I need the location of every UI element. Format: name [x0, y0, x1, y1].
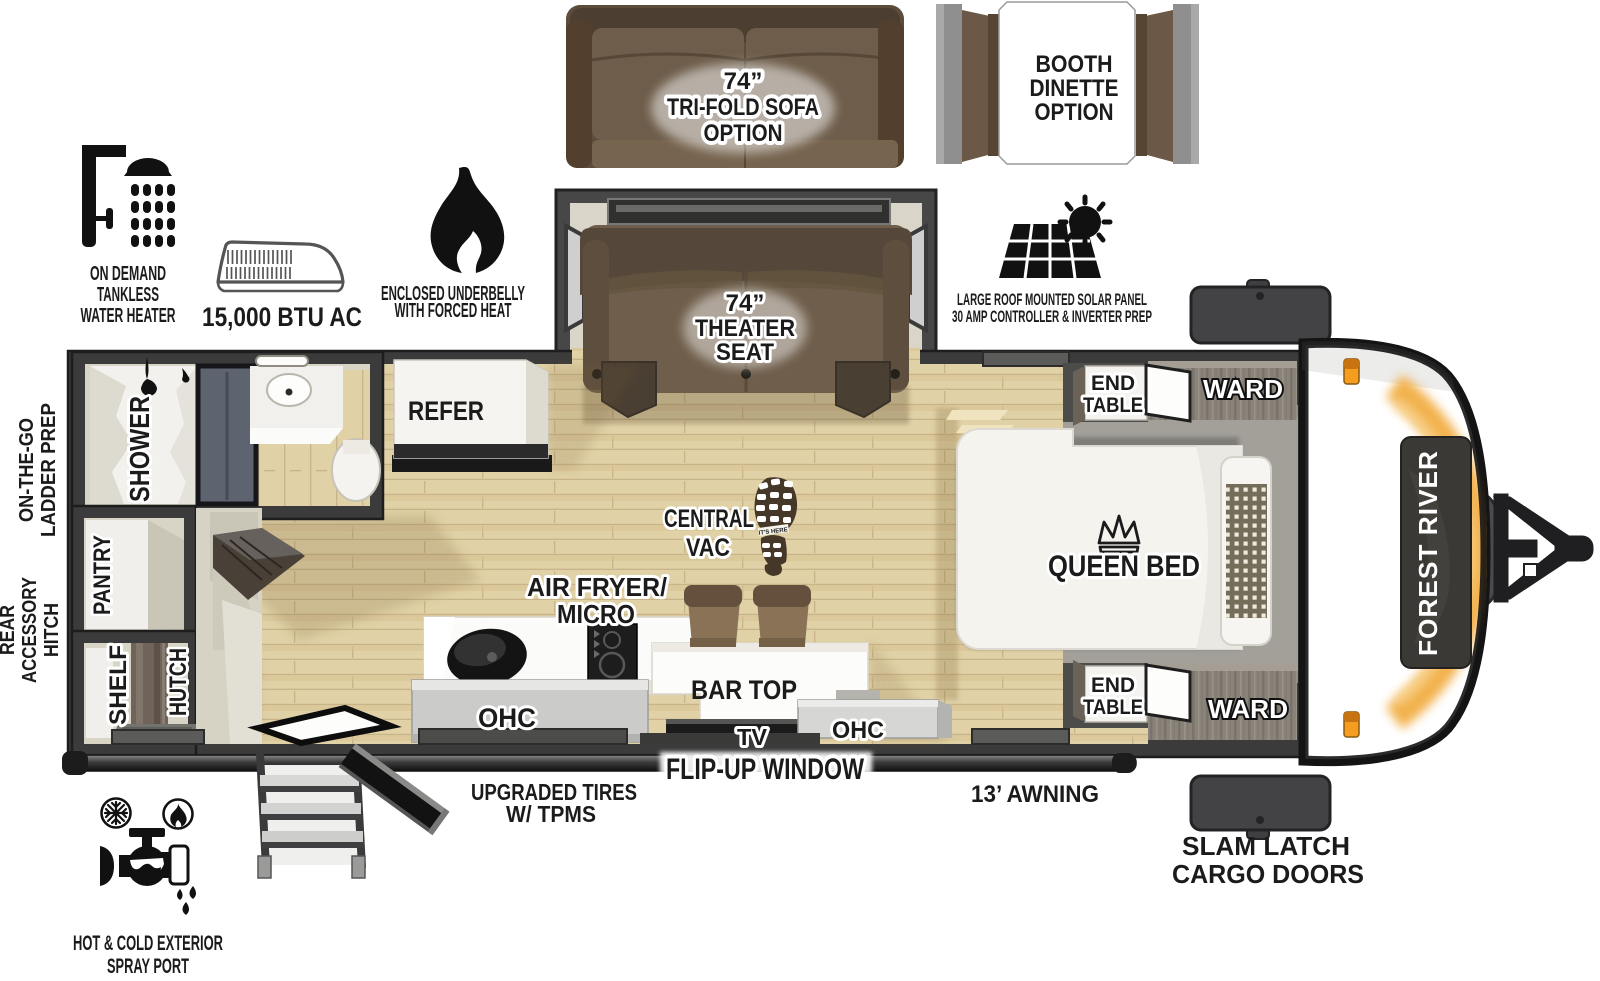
svg-text:LADDER PREP: LADDER PREP: [38, 403, 60, 537]
svg-text:TABLE: TABLE: [1083, 696, 1143, 719]
svg-text:AIR FRYER/: AIR FRYER/: [527, 572, 667, 602]
svg-text:WARD: WARD: [1203, 374, 1283, 404]
svg-text:THEATER: THEATER: [695, 315, 795, 342]
svg-text:30 AMP CONTROLLER & INVERTER P: 30 AMP CONTROLLER & INVERTER PREP: [952, 307, 1152, 326]
svg-text:REFER: REFER: [408, 396, 484, 426]
svg-text:DINETTE: DINETTE: [1030, 75, 1119, 102]
svg-text:ON DEMAND: ON DEMAND: [90, 263, 166, 285]
svg-text:END: END: [1091, 372, 1135, 395]
svg-text:HOT & COLD EXTERIOR: HOT & COLD EXTERIOR: [73, 932, 223, 955]
svg-text:FLIP-UP WINDOW: FLIP-UP WINDOW: [666, 753, 865, 786]
svg-text:OHC: OHC: [832, 717, 884, 744]
svg-text:74”: 74”: [726, 290, 765, 317]
svg-text:SPRAY PORT: SPRAY PORT: [107, 955, 189, 978]
svg-text:HUTCH: HUTCH: [165, 648, 192, 716]
svg-text:W/ TPMS: W/ TPMS: [506, 801, 596, 827]
svg-text:PANTRY: PANTRY: [89, 535, 116, 615]
svg-text:FOREST RIVER: FOREST RIVER: [1413, 450, 1443, 656]
svg-text:OHC: OHC: [478, 703, 536, 733]
svg-text:SLAM LATCH: SLAM LATCH: [1182, 831, 1350, 861]
svg-text:OPTION: OPTION: [1035, 99, 1114, 126]
svg-text:SHELF: SHELF: [105, 645, 132, 725]
svg-text:MICRO: MICRO: [557, 599, 635, 629]
svg-text:WARD: WARD: [1208, 694, 1288, 724]
svg-text:TRI-FOLD SOFA: TRI-FOLD SOFA: [667, 94, 819, 121]
svg-text:TV: TV: [737, 724, 768, 750]
svg-text:CARGO DOORS: CARGO DOORS: [1172, 859, 1364, 889]
svg-text:15,000 BTU AC: 15,000 BTU AC: [202, 302, 362, 332]
svg-text:CENTRAL: CENTRAL: [664, 505, 754, 533]
svg-text:ACCESSORY: ACCESSORY: [19, 576, 41, 683]
svg-text:VAC: VAC: [686, 534, 730, 562]
svg-text:BAR TOP: BAR TOP: [691, 675, 797, 705]
svg-text:BOOTH: BOOTH: [1036, 51, 1113, 78]
svg-text:TANKLESS: TANKLESS: [97, 284, 159, 306]
svg-text:SEAT: SEAT: [716, 339, 774, 366]
svg-text:REAR: REAR: [0, 605, 19, 655]
svg-text:13’ AWNING: 13’ AWNING: [971, 781, 1099, 808]
svg-text:WATER HEATER: WATER HEATER: [81, 305, 176, 327]
svg-text:SHOWER: SHOWER: [124, 396, 155, 502]
svg-text:74”: 74”: [724, 68, 763, 95]
svg-text:TABLE: TABLE: [1083, 394, 1143, 417]
svg-text:ON-THE-GO: ON-THE-GO: [16, 418, 38, 522]
svg-text:HITCH: HITCH: [41, 603, 63, 657]
svg-text:QUEEN BED: QUEEN BED: [1048, 550, 1200, 583]
svg-text:END: END: [1091, 674, 1135, 697]
svg-text:WITH FORCED HEAT: WITH FORCED HEAT: [395, 300, 512, 322]
svg-text:OPTION: OPTION: [704, 120, 783, 147]
